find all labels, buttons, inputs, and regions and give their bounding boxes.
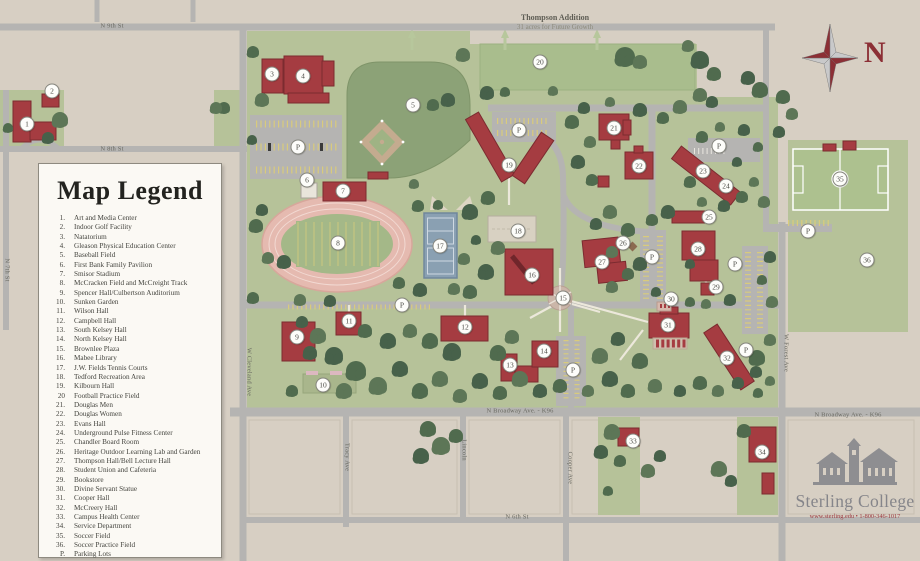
- legend-item-label: McCreery Hall: [74, 504, 221, 513]
- legend-item-number: 13.: [39, 326, 74, 335]
- legend-item-number: 29.: [39, 476, 74, 485]
- legend-item-label: First Bank Family Pavilion: [74, 261, 221, 270]
- map-marker-7: 7: [336, 184, 351, 199]
- legend-item-label: Douglas Women: [74, 410, 221, 419]
- legend-item-number: 19.: [39, 382, 74, 391]
- legend-item-number: P.: [39, 550, 74, 559]
- legend-item-number: 3.: [39, 233, 74, 242]
- legend-item-label: Indoor Golf Facility: [74, 223, 221, 232]
- map-marker-20: 20: [533, 55, 548, 70]
- legend-item-number: 17.: [39, 364, 74, 373]
- street-label: W Forest Ave: [783, 334, 790, 372]
- map-marker-parking: P: [739, 343, 754, 358]
- legend-item: P.Parking Lots: [39, 550, 221, 559]
- compass-rose: N: [800, 22, 910, 97]
- street-label: N 7th St: [4, 258, 11, 281]
- college-contact: www.sterling.edu • 1-800-346-1017: [793, 513, 917, 520]
- street-label: N Broadway Ave. - K96: [814, 412, 881, 419]
- map-marker-16: 16: [525, 268, 540, 283]
- legend-item-number: 25.: [39, 438, 74, 447]
- legend-item: 19.Kilbourn Hall: [39, 382, 221, 391]
- map-marker-11: 11: [342, 314, 357, 329]
- legend-item-label: Divine Servant Statue: [74, 485, 221, 494]
- map-marker-28: 28: [691, 242, 706, 257]
- map-marker-12: 12: [458, 320, 473, 335]
- legend-item: 17.J.W. Fields Tennis Courts: [39, 364, 221, 373]
- legend-panel: Map Legend 1.Art and Media Center2.Indoo…: [38, 163, 222, 558]
- legend-item: 15.Brownlee Plaza: [39, 345, 221, 354]
- legend-item-label: J.W. Fields Tennis Courts: [74, 364, 221, 373]
- legend-item-label: Thompson Hall/Bell Lecture Hall: [74, 457, 221, 466]
- map-marker-parking: P: [512, 123, 527, 138]
- legend-item-number: 33.: [39, 513, 74, 522]
- map-marker-17: 17: [433, 239, 448, 254]
- college-name: Sterling College: [793, 491, 917, 512]
- legend-item: 35.Soccer Field: [39, 532, 221, 541]
- street-label: W Cleveland Ave: [246, 348, 253, 397]
- legend-item: 14.North Kelsey Hall: [39, 335, 221, 344]
- legend-item-label: Kilbourn Hall: [74, 382, 221, 391]
- legend-item-number: 30.: [39, 485, 74, 494]
- college-logo: Sterling College www.sterling.edu • 1-80…: [793, 438, 917, 520]
- map-marker-3: 3: [265, 67, 280, 82]
- legend-item: 16.Mabee Library: [39, 354, 221, 363]
- legend-item-number: 12.: [39, 317, 74, 326]
- map-marker-10: 10: [316, 378, 331, 393]
- thompson-title: Thompson Addition: [455, 13, 655, 22]
- street-label: N 9th St: [100, 23, 123, 30]
- legend-item: 12.Campbell Hall: [39, 317, 221, 326]
- legend-item-label: Evans Hall: [74, 420, 221, 429]
- map-marker-15: 15: [556, 291, 571, 306]
- legend-item: 26.Heritage Outdoor Learning Lab and Gar…: [39, 448, 221, 457]
- legend-item-number: 36.: [39, 541, 74, 550]
- legend-item: 31.Cooper Hall: [39, 494, 221, 503]
- legend-item: 32.McCreery Hall: [39, 504, 221, 513]
- street-label: Cooper Ave: [567, 452, 574, 485]
- legend-item: 18.Tedford Recreation Area: [39, 373, 221, 382]
- legend-item: 33.Campus Health Center: [39, 513, 221, 522]
- legend-item: 20Football Practice Field: [39, 392, 221, 401]
- legend-item-label: Wilson Hall: [74, 307, 221, 316]
- campus-map: 1234567891011121314151617181920212223242…: [0, 0, 920, 561]
- map-marker-2: 2: [45, 84, 60, 99]
- legend-item-number: 7.: [39, 270, 74, 279]
- map-marker-35: 35: [833, 172, 848, 187]
- map-marker-27: 27: [595, 255, 610, 270]
- legend-item-label: Soccer Practice Field: [74, 541, 221, 550]
- map-marker-5: 5: [406, 98, 421, 113]
- legend-item-number: 28.: [39, 466, 74, 475]
- street-label: N 8th St: [100, 146, 123, 153]
- map-marker-parking: P: [728, 257, 743, 272]
- legend-item-number: 5.: [39, 251, 74, 260]
- legend-item: 28.Student Union and Cafeteria: [39, 466, 221, 475]
- map-marker-34: 34: [755, 445, 770, 460]
- legend-item: 8.McCracken Field and McCreight Track: [39, 279, 221, 288]
- legend-item-label: Campus Health Center: [74, 513, 221, 522]
- legend-item-number: 10.: [39, 298, 74, 307]
- legend-item: 30.Divine Servant Statue: [39, 485, 221, 494]
- legend-item: 10.Sunken Garden: [39, 298, 221, 307]
- map-marker-31: 31: [661, 318, 676, 333]
- map-marker-parking: P: [712, 139, 727, 154]
- legend-item-number: 4.: [39, 242, 74, 251]
- legend-item: 6.First Bank Family Pavilion: [39, 261, 221, 270]
- map-marker-21: 21: [607, 121, 622, 136]
- legend-item-label: Parking Lots: [74, 550, 221, 559]
- legend-item: 25.Chandler Board Room: [39, 438, 221, 447]
- legend-item: 36.Soccer Practice Field: [39, 541, 221, 550]
- legend-list: 1.Art and Media Center2.Indoor Golf Faci…: [39, 214, 221, 560]
- legend-title: Map Legend: [43, 176, 217, 206]
- map-marker-9: 9: [290, 330, 305, 345]
- legend-item-label: Gleason Physical Education Center: [74, 242, 221, 251]
- map-marker-6: 6: [300, 173, 315, 188]
- legend-item: 23.Evans Hall: [39, 420, 221, 429]
- map-marker-8: 8: [331, 236, 346, 251]
- legend-item: 27.Thompson Hall/Bell Lecture Hall: [39, 457, 221, 466]
- legend-item-number: 9.: [39, 289, 74, 298]
- map-marker-parking: P: [801, 224, 816, 239]
- map-marker-22: 22: [632, 159, 647, 174]
- legend-item: 1.Art and Media Center: [39, 214, 221, 223]
- legend-item-number: 35.: [39, 532, 74, 541]
- legend-item-number: 8.: [39, 279, 74, 288]
- legend-item-number: 18.: [39, 373, 74, 382]
- legend-item: 34.Service Department: [39, 522, 221, 531]
- map-marker-parking: P: [395, 298, 410, 313]
- legend-item-number: 14.: [39, 335, 74, 344]
- legend-item-label: Tedford Recreation Area: [74, 373, 221, 382]
- legend-item-number: 34.: [39, 522, 74, 531]
- map-marker-4: 4: [296, 69, 311, 84]
- legend-item-label: Chandler Board Room: [74, 438, 221, 447]
- thompson-subtitle: 31 acres for Future Growth: [455, 23, 655, 31]
- legend-item-number: 32.: [39, 504, 74, 513]
- legend-item: 9.Spencer Hall/Culbertson Auditorium: [39, 289, 221, 298]
- legend-item: 13.South Kelsey Hall: [39, 326, 221, 335]
- legend-item-label: Service Department: [74, 522, 221, 531]
- legend-item-label: Smisor Stadium: [74, 270, 221, 279]
- legend-item-number: 27.: [39, 457, 74, 466]
- legend-item-label: South Kelsey Hall: [74, 326, 221, 335]
- legend-item-number: 16.: [39, 354, 74, 363]
- map-marker-30: 30: [664, 292, 679, 307]
- legend-item-number: 15.: [39, 345, 74, 354]
- legend-item-number: 22.: [39, 410, 74, 419]
- legend-item-label: McCracken Field and McCreight Track: [74, 279, 221, 288]
- legend-item: 5.Baseball Field: [39, 251, 221, 260]
- legend-item: 4.Gleason Physical Education Center: [39, 242, 221, 251]
- thompson-addition-note: Thompson Addition 31 acres for Future Gr…: [455, 13, 655, 31]
- legend-item: 2.Indoor Golf Facility: [39, 223, 221, 232]
- legend-item-label: Natatorium: [74, 233, 221, 242]
- map-marker-32: 32: [720, 351, 735, 366]
- legend-item-label: Underground Pulse Fitness Center: [74, 429, 221, 438]
- legend-item-label: Art and Media Center: [74, 214, 221, 223]
- map-marker-29: 29: [709, 280, 724, 295]
- map-marker-25: 25: [702, 210, 717, 225]
- legend-item-label: Mabee Library: [74, 354, 221, 363]
- legend-item: 3.Natatorium: [39, 233, 221, 242]
- compass-star-icon: [800, 22, 860, 94]
- map-marker-19: 19: [502, 158, 517, 173]
- legend-item-number: 6.: [39, 261, 74, 270]
- legend-item-number: 31.: [39, 494, 74, 503]
- legend-item-number: 26.: [39, 448, 74, 457]
- map-marker-18: 18: [511, 224, 526, 239]
- legend-item-label: Sunken Garden: [74, 298, 221, 307]
- street-label: Tracy Ave: [344, 443, 351, 471]
- map-marker-parking: P: [566, 363, 581, 378]
- legend-item-label: Bookstore: [74, 476, 221, 485]
- legend-item-label: North Kelsey Hall: [74, 335, 221, 344]
- legend-item: 21.Douglas Men: [39, 401, 221, 410]
- legend-item: 11.Wilson Hall: [39, 307, 221, 316]
- legend-item: 7.Smisor Stadium: [39, 270, 221, 279]
- legend-item-number: 2.: [39, 223, 74, 232]
- legend-item-number: 11.: [39, 307, 74, 316]
- street-label: Lincoln: [461, 439, 468, 461]
- map-marker-24: 24: [719, 179, 734, 194]
- college-buildings-icon: [807, 438, 903, 488]
- map-marker-parking: P: [645, 250, 660, 265]
- map-marker-13: 13: [503, 358, 518, 373]
- legend-item-label: Cooper Hall: [74, 494, 221, 503]
- football-practice-field: [480, 44, 695, 90]
- map-marker-14: 14: [537, 344, 552, 359]
- legend-item: 24.Underground Pulse Fitness Center: [39, 429, 221, 438]
- map-marker-26: 26: [616, 236, 631, 251]
- legend-item-label: Brownlee Plaza: [74, 345, 221, 354]
- legend-item-label: Spencer Hall/Culbertson Auditorium: [74, 289, 221, 298]
- legend-item-label: Campbell Hall: [74, 317, 221, 326]
- map-marker-parking: P: [291, 140, 306, 155]
- map-marker-1: 1: [20, 117, 35, 132]
- legend-item-label: Student Union and Cafeteria: [74, 466, 221, 475]
- map-marker-33: 33: [626, 434, 641, 449]
- legend-item: 22.Douglas Women: [39, 410, 221, 419]
- map-marker-36: 36: [860, 253, 875, 268]
- street-label: N Broadway Ave. - K96: [486, 408, 553, 415]
- legend-item-number: 23.: [39, 420, 74, 429]
- legend-item-label: Football Practice Field: [74, 392, 221, 401]
- legend-item-label: Heritage Outdoor Learning Lab and Garden: [74, 448, 221, 457]
- street-label: N 6th St: [505, 514, 528, 521]
- legend-item-number: 24.: [39, 429, 74, 438]
- map-marker-23: 23: [696, 164, 711, 179]
- legend-item-label: Baseball Field: [74, 251, 221, 260]
- legend-item-number: 20: [39, 392, 74, 401]
- legend-item-number: 21.: [39, 401, 74, 410]
- legend-item-label: Douglas Men: [74, 401, 221, 410]
- legend-item-number: 1.: [39, 214, 74, 223]
- legend-item-label: Soccer Field: [74, 532, 221, 541]
- legend-item: 29.Bookstore: [39, 476, 221, 485]
- compass-north-label: N: [864, 36, 886, 70]
